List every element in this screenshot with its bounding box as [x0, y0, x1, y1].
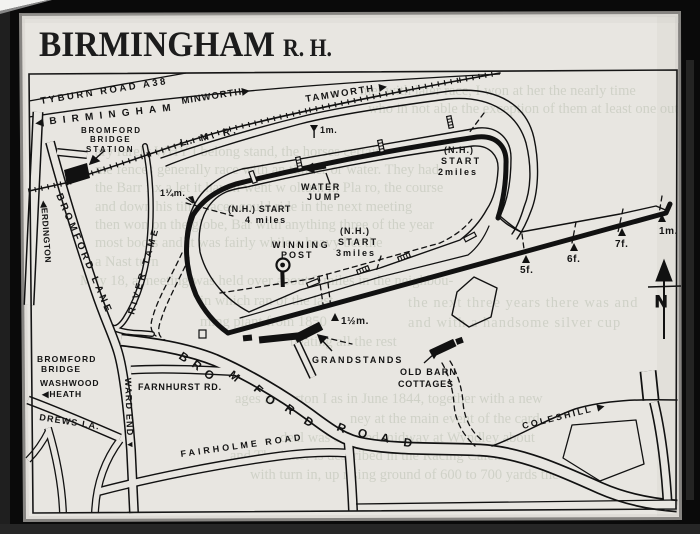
svg-text:1½m.: 1½m. — [341, 316, 369, 327]
svg-text:WASHWOOD: WASHWOOD — [40, 378, 99, 388]
svg-text:STATION: STATION — [86, 145, 135, 154]
svg-text:OLD BARN: OLD BARN — [400, 367, 457, 377]
svg-text:7f.: 7f. — [615, 239, 628, 250]
svg-text:POST: POST — [281, 250, 314, 260]
svg-text:1¼m.: 1¼m. — [160, 188, 185, 198]
svg-text:BIRMINGHAM: BIRMINGHAM — [39, 24, 275, 64]
svg-text:1m.: 1m. — [659, 226, 678, 237]
svg-text:3miles: 3miles — [336, 248, 376, 258]
svg-text:◀HEATH: ◀HEATH — [41, 389, 82, 399]
svg-text:(N.H.): (N.H.) — [444, 145, 474, 155]
svg-text:with turn in, up rising ground: with turn in, up rising ground of 600 to… — [250, 467, 559, 483]
svg-text:(N.H.) START: (N.H.) START — [228, 204, 291, 214]
svg-text:BROMFORD: BROMFORD — [81, 126, 142, 135]
svg-text:(N.H.): (N.H.) — [340, 226, 370, 236]
svg-text:JUMP: JUMP — [307, 192, 342, 202]
svg-text:and with a handsome silver cup: and with a handsome silver cup — [408, 315, 621, 331]
svg-text:N: N — [655, 292, 667, 311]
svg-text:START: START — [441, 156, 481, 166]
svg-text:5f.: 5f. — [520, 265, 533, 276]
svg-text:ney at the main event of the c: ney at the main event of the card — [350, 411, 540, 427]
svg-text:2miles: 2miles — [438, 167, 478, 177]
svg-text:1m.: 1m. — [320, 125, 337, 135]
svg-text:6f.: 6f. — [567, 254, 580, 265]
svg-text:FARNHURST RD.: FARNHURST RD. — [138, 382, 222, 392]
svg-text:COTTAGES: COTTAGES — [398, 379, 454, 389]
svg-text:BRIDGE: BRIDGE — [90, 135, 131, 144]
svg-text:R. H.: R. H. — [283, 35, 332, 62]
svg-text:WINNING: WINNING — [272, 240, 330, 250]
svg-text:BRIDGE: BRIDGE — [41, 364, 81, 374]
svg-text:START: START — [338, 237, 378, 247]
svg-text:in which ran of the last: in which ran of the last — [200, 293, 333, 309]
svg-text:4 miles: 4 miles — [245, 215, 287, 225]
svg-text:the next three years there was: the next three years there was and — [408, 295, 638, 311]
svg-text:WATER: WATER — [301, 182, 341, 192]
svg-text:GRANDSTANDS: GRANDSTANDS — [312, 355, 403, 365]
svg-text:BROMFORD: BROMFORD — [37, 354, 97, 364]
